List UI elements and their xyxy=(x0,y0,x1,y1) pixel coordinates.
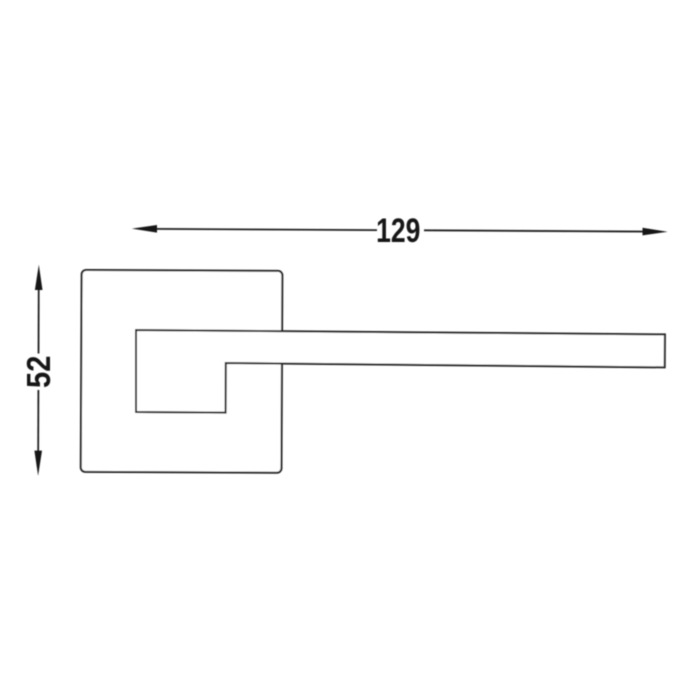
svg-text:52: 52 xyxy=(20,356,57,388)
svg-text:129: 129 xyxy=(376,212,420,250)
